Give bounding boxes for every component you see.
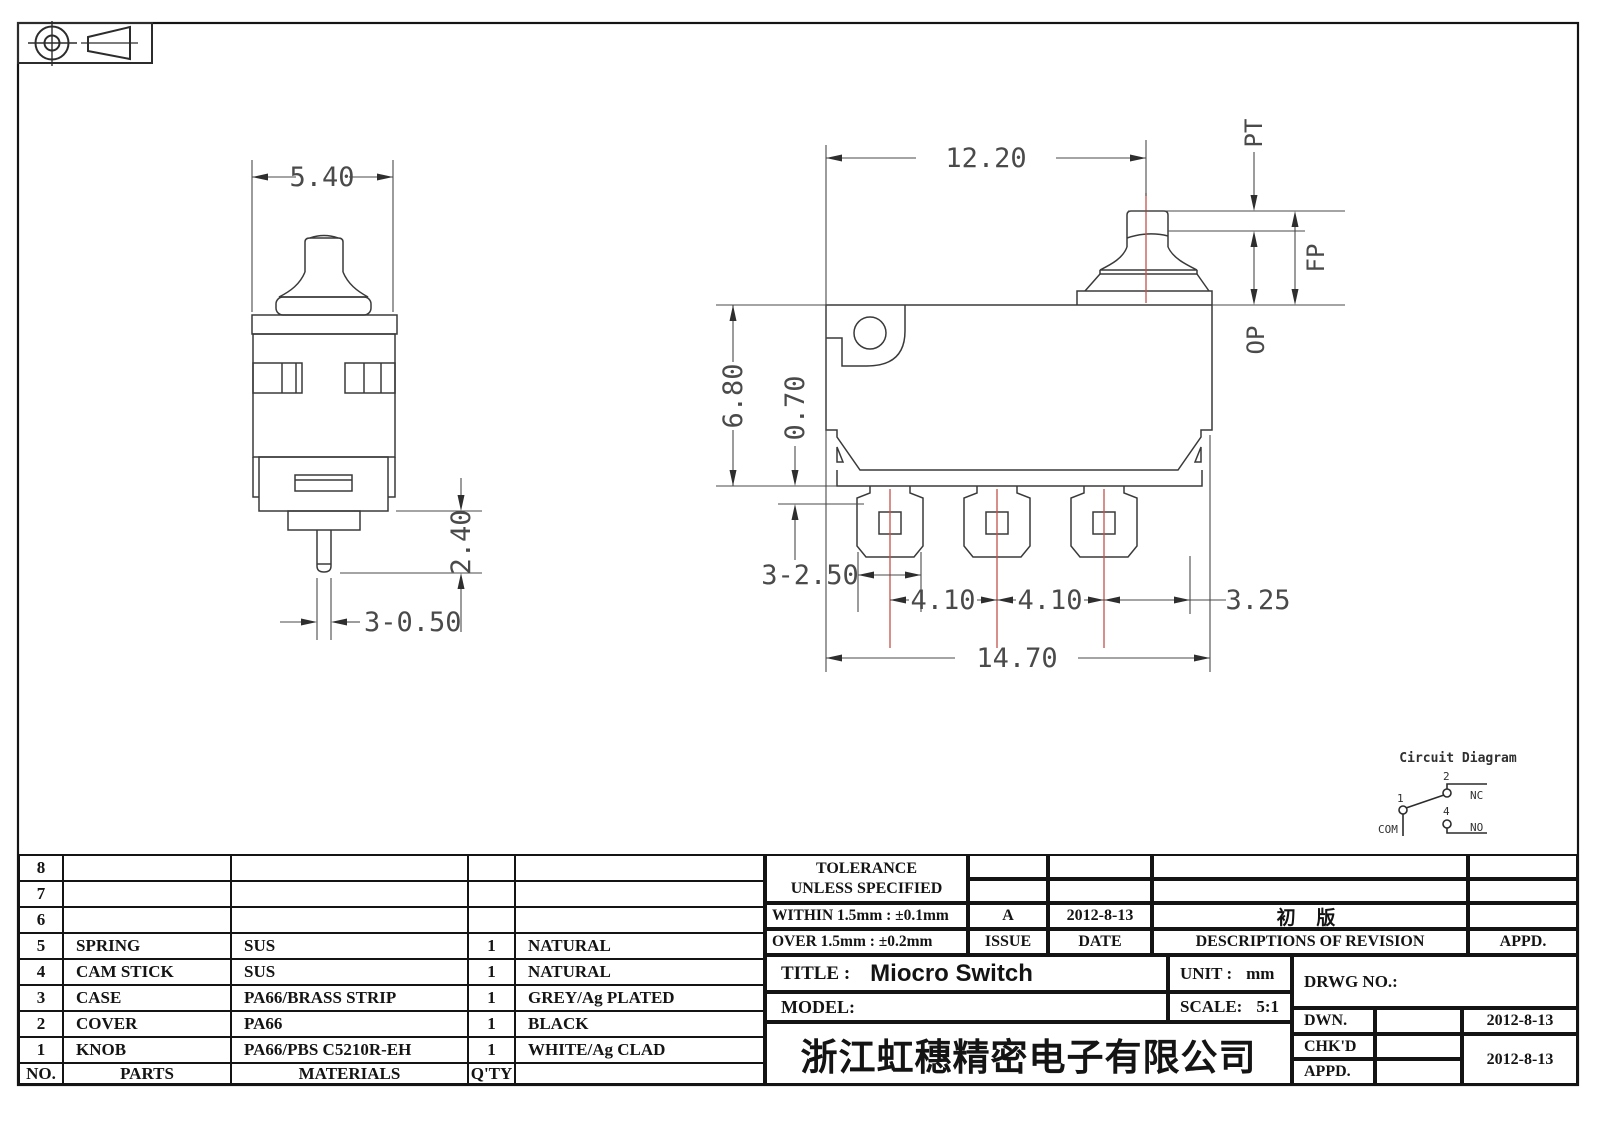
circuit-title: Circuit Diagram — [1399, 751, 1517, 766]
part-name — [62, 856, 230, 880]
tolerance-line1: TOLERANCE — [816, 859, 917, 879]
revision-empty-cell — [1048, 879, 1152, 903]
part-no: 6 — [20, 908, 62, 932]
part-remark: NATURAL — [514, 960, 763, 984]
tolerance-cell: TOLERANCE UNLESS SPECIFIED — [765, 854, 968, 903]
part-material: PA66 — [230, 1012, 467, 1036]
circuit-no-label: NO — [1470, 821, 1483, 834]
chkd-appd-date: 2012-8-13 — [1462, 1034, 1578, 1085]
header-parts: PARTS — [62, 1064, 230, 1083]
part-remark — [514, 882, 763, 906]
dim-fp: FP — [1302, 244, 1330, 273]
part-name — [62, 908, 230, 932]
front-view — [252, 236, 397, 573]
part-material: PA66/PBS C5210R-EH — [230, 1038, 467, 1062]
appd-column-label: APPD. — [1468, 929, 1578, 955]
dim-pitch-a: 4.10 — [910, 585, 975, 616]
header-no: NO. — [20, 1064, 62, 1083]
centerlines — [890, 193, 1146, 648]
dwn-signature-cell — [1375, 1008, 1462, 1034]
circuit-terminal-2-number: 2 — [1443, 770, 1450, 783]
part-name: CAM STICK — [62, 960, 230, 984]
dim-front-width: 5.40 — [289, 162, 354, 193]
part-qty: 1 — [467, 934, 514, 958]
part-qty — [467, 908, 514, 932]
revision-empty-cell — [1048, 854, 1152, 879]
part-remark — [514, 856, 763, 880]
part-material — [230, 908, 467, 932]
dim-terminal-width: 3-2.50 — [761, 560, 859, 591]
table-row: 6 — [18, 906, 765, 932]
drwg-no-cell: DRWG NO.: — [1292, 955, 1578, 1008]
revision-description: 初 版 — [1152, 903, 1468, 929]
part-remark: BLACK — [514, 1012, 763, 1036]
unit-label: UNIT : — [1180, 964, 1232, 984]
appd-label: APPD. — [1292, 1059, 1375, 1085]
part-no: 7 — [20, 882, 62, 906]
issue-date: 2012-8-13 — [1048, 903, 1152, 929]
revision-empty-cell — [968, 854, 1048, 879]
chkd-label: CHK'D — [1292, 1034, 1375, 1059]
model-cell: MODEL: — [765, 992, 1168, 1022]
appd-signature-cell — [1375, 1059, 1462, 1085]
table-row: 5 SPRING SUS 1 NATURAL — [18, 932, 765, 958]
projection-symbol-icon — [18, 21, 152, 66]
unit-cell: UNIT : mm — [1168, 955, 1292, 992]
part-remark: WHITE/Ag CLAD — [514, 1038, 763, 1062]
dim-plunger-position: 12.20 — [945, 143, 1026, 174]
side-view — [826, 211, 1212, 557]
part-material: SUS — [230, 960, 467, 984]
date-label: DATE — [1048, 929, 1152, 955]
part-qty — [467, 882, 514, 906]
tolerance-line2: UNLESS SPECIFIED — [791, 879, 943, 899]
dim-front-pin-dia: 3-0.50 — [364, 607, 462, 638]
part-no: 5 — [20, 934, 62, 958]
part-qty: 1 — [467, 1012, 514, 1036]
issue-value: A — [968, 903, 1048, 929]
part-qty: 1 — [467, 986, 514, 1010]
chkd-signature-cell — [1375, 1034, 1462, 1059]
part-name: KNOB — [62, 1038, 230, 1062]
part-name — [62, 882, 230, 906]
part-no: 4 — [20, 960, 62, 984]
part-remark — [514, 908, 763, 932]
table-row: 2 COVER PA66 1 BLACK — [18, 1010, 765, 1036]
scale-label: SCALE: — [1180, 997, 1242, 1017]
part-no: 1 — [20, 1038, 62, 1062]
dim-front-pin-length: 2.40 — [446, 509, 477, 574]
tolerance-within: WITHIN 1.5mm : ±0.1mm — [765, 903, 968, 929]
part-qty — [467, 856, 514, 880]
dim-overall-width: 14.70 — [976, 643, 1057, 674]
company-name: 浙江虹穗精密电子有限公司 — [765, 1022, 1292, 1085]
scale-value: 5:1 — [1256, 997, 1279, 1017]
revision-empty-cell — [1468, 854, 1578, 879]
table-row: 8 — [18, 854, 765, 880]
parts-table-header-row: NO. PARTS MATERIALS Q'TY — [18, 1062, 765, 1085]
revision-empty-cell — [1468, 903, 1578, 929]
circuit-terminal-4-number: 4 — [1443, 805, 1450, 818]
circuit-terminal-1-number: 1 — [1397, 792, 1404, 805]
header-qty: Q'TY — [467, 1064, 514, 1083]
part-name: CASE — [62, 986, 230, 1010]
table-row: 4 CAM STICK SUS 1 NATURAL — [18, 958, 765, 984]
part-material: PA66/BRASS STRIP — [230, 986, 467, 1010]
part-remark: GREY/Ag PLATED — [514, 986, 763, 1010]
header-materials: MATERIALS — [230, 1064, 467, 1083]
issue-label: ISSUE — [968, 929, 1048, 955]
header-remark — [514, 1064, 763, 1083]
dim-pitch-b: 4.10 — [1017, 585, 1082, 616]
revision-empty-cell — [1152, 879, 1468, 903]
unit-value: mm — [1246, 964, 1274, 984]
part-name: SPRING — [62, 934, 230, 958]
dwn-label: DWN. — [1292, 1008, 1375, 1034]
revision-label: DESCRIPTIONS OF REVISION — [1152, 929, 1468, 955]
table-row: 7 — [18, 880, 765, 906]
revision-empty-cell — [1468, 879, 1578, 903]
dim-op: OP — [1242, 326, 1270, 355]
title-cell: TITLE : Miocro Switch — [765, 955, 1168, 992]
tolerance-over: OVER 1.5mm : ±0.2mm — [765, 929, 968, 955]
front-view-arrowheads — [252, 174, 465, 626]
circuit-diagram: Circuit Diagram 1 2 4 COM NC NO — [1378, 751, 1517, 836]
dim-end-offset: 3.25 — [1225, 585, 1290, 616]
engineering-drawing-page: 5.40 2.40 3-0.50 — [0, 0, 1600, 1131]
table-row: 3 CASE PA66/BRASS STRIP 1 GREY/Ag PLATED — [18, 984, 765, 1010]
revision-empty-cell — [968, 879, 1048, 903]
title-label: TITLE : — [781, 963, 850, 985]
part-material — [230, 856, 467, 880]
part-no: 8 — [20, 856, 62, 880]
circuit-nc-label: NC — [1470, 789, 1483, 802]
circuit-com-label: COM — [1378, 823, 1398, 836]
scale-cell: SCALE: 5:1 — [1168, 992, 1292, 1022]
part-qty: 1 — [467, 1038, 514, 1062]
part-name: COVER — [62, 1012, 230, 1036]
part-material — [230, 882, 467, 906]
part-no: 3 — [20, 986, 62, 1010]
table-row: 1 KNOB PA66/PBS C5210R-EH 1 WHITE/Ag CLA… — [18, 1036, 765, 1062]
part-material: SUS — [230, 934, 467, 958]
dim-side-height: 6.80 — [718, 363, 749, 428]
part-qty: 1 — [467, 960, 514, 984]
part-no: 2 — [20, 1012, 62, 1036]
dim-pt: PT — [1240, 119, 1268, 148]
part-remark: NATURAL — [514, 934, 763, 958]
revision-empty-cell — [1152, 854, 1468, 879]
title-value: Miocro Switch — [870, 960, 1033, 988]
dwn-date: 2012-8-13 — [1462, 1008, 1578, 1034]
dim-side-step: 0.70 — [780, 375, 811, 440]
